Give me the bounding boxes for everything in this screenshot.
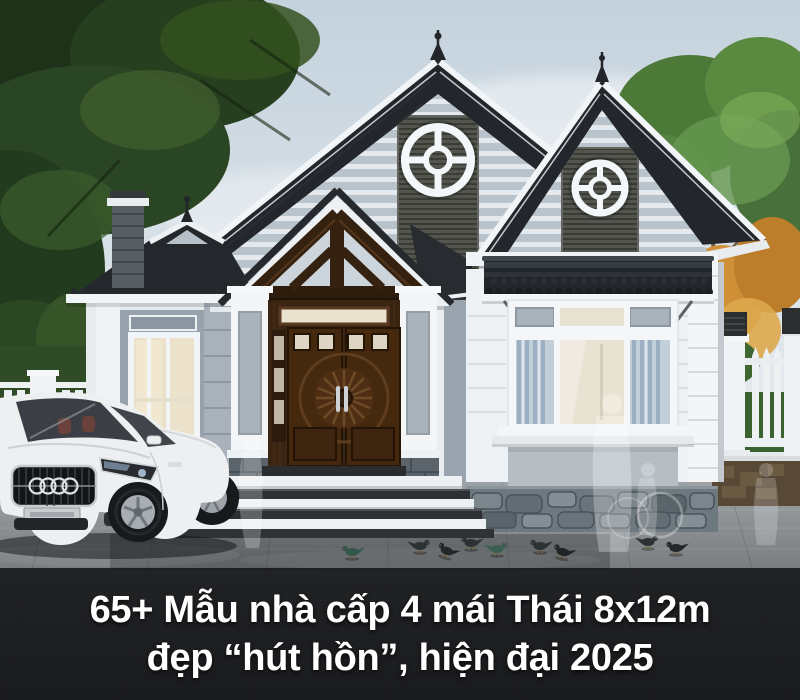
car-door-handle — [168, 462, 182, 467]
caption-line-2: đẹp “hút hồn”, hiện đại 2025 — [147, 635, 654, 681]
door-handle — [336, 386, 340, 412]
window-pane-right — [630, 340, 670, 424]
front-door — [262, 300, 406, 476]
chimney — [107, 191, 149, 288]
caption-overlay: 65+ Mẫu nhà cấp 4 mái Thái 8x12m đẹp “hú… — [0, 568, 800, 700]
house-render-image: 65+ Mẫu nhà cấp 4 mái Thái 8x12m đẹp “hú… — [0, 0, 800, 700]
door-handle — [344, 386, 348, 412]
window-sill — [492, 426, 694, 447]
caption-line-1: 65+ Mẫu nhà cấp 4 mái Thái 8x12m — [90, 587, 711, 633]
door-transom — [280, 308, 388, 324]
car-grille — [12, 466, 96, 506]
door-sidelight — [272, 330, 286, 442]
car-mirror — [147, 436, 161, 444]
window-pane-left — [516, 340, 554, 424]
car-front-wheel — [108, 482, 168, 542]
